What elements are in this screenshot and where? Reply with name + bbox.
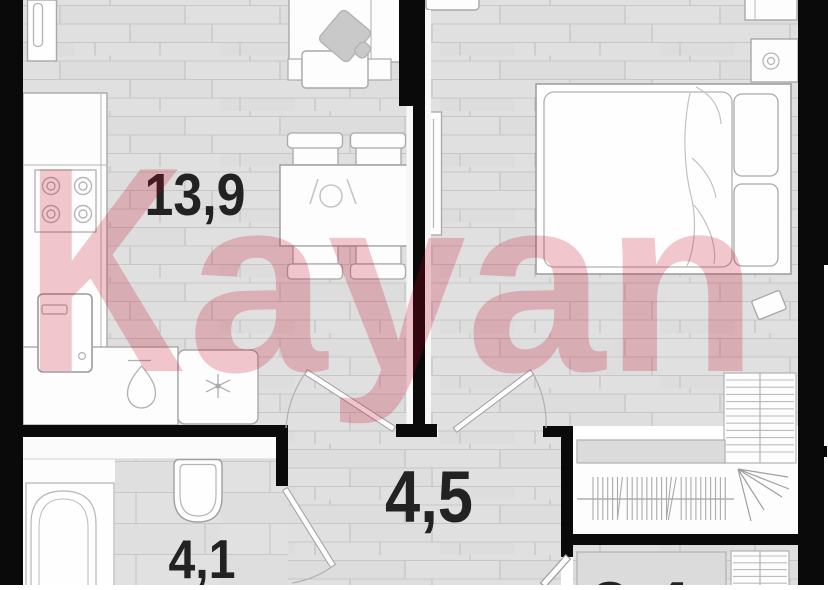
svg-text:ayan: ayan bbox=[188, 144, 758, 425]
svg-text:4,1: 4,1 bbox=[169, 528, 236, 585]
svg-text:K: K bbox=[25, 107, 185, 434]
svg-text:3,4: 3,4 bbox=[590, 568, 690, 585]
svg-text:4,5: 4,5 bbox=[385, 457, 473, 538]
